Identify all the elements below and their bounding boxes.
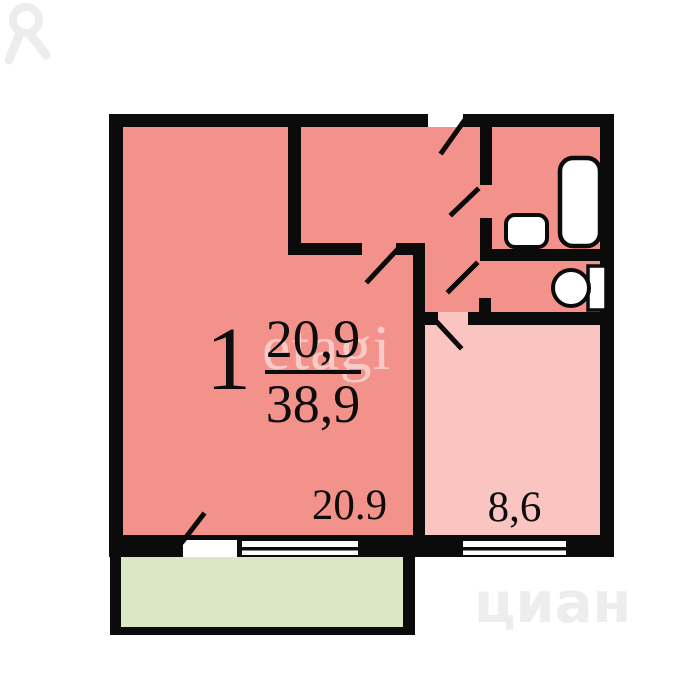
bathtub-icon <box>560 158 600 246</box>
floorplan-canvas: etagi 1 20,9 38,9 20.9 8,6 циан <box>0 0 700 700</box>
sink-icon <box>506 215 547 247</box>
wall-living-kitchen-divider <box>413 243 425 557</box>
balcony <box>110 557 415 635</box>
living-room-window-mullion <box>242 547 358 551</box>
wall-bathroom-bottom <box>480 249 600 261</box>
balcony-floor <box>121 557 403 627</box>
balcony-wall-right <box>403 557 415 635</box>
wall-kitchen-top <box>468 312 600 325</box>
cian-pin-icon <box>0 0 52 66</box>
balcony-wall-left <box>110 557 121 635</box>
wall-bathroom-left-upper <box>480 127 492 185</box>
area-fraction: 20,9 38,9 <box>258 312 368 431</box>
living-room-area-label: 20.9 <box>297 484 402 527</box>
balcony-wall-bottom <box>110 627 415 635</box>
wall-hall-left <box>288 127 301 255</box>
kitchen-area-label: 8,6 <box>462 486 567 529</box>
wall-outer-left <box>109 114 123 557</box>
entrance-opening <box>428 114 463 127</box>
wall-livingroom-top <box>288 243 362 255</box>
wall-outer-top <box>109 114 614 127</box>
balcony-door-opening <box>183 540 237 557</box>
toilet-bowl-icon <box>553 270 589 306</box>
total-area-value: 38,9 <box>258 377 368 431</box>
living-area-value: 20,9 <box>258 312 368 366</box>
watermark-cian: циан <box>474 576 631 632</box>
kitchen-window-mullion <box>463 547 566 551</box>
